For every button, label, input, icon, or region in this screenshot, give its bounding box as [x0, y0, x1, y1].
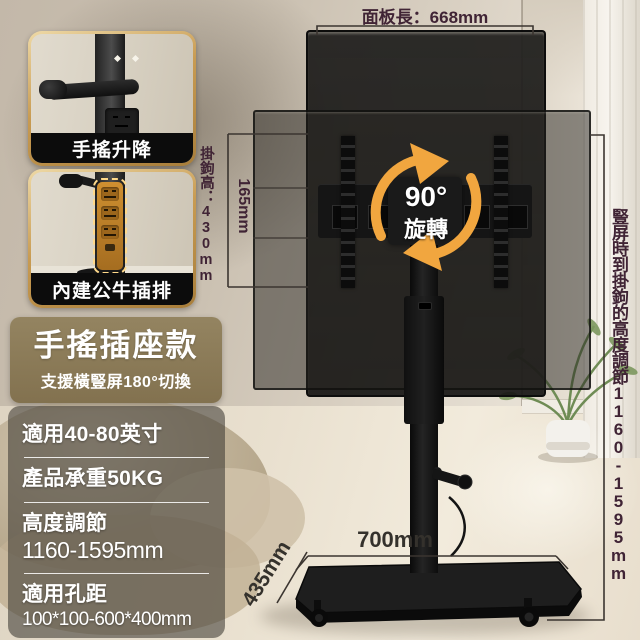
- socket-outlet: [101, 225, 119, 239]
- inset-card-crank: 手搖升降: [28, 31, 196, 166]
- rotation-angle-label: 90°: [386, 181, 466, 213]
- inset-caption: 手搖升降: [31, 133, 193, 163]
- inset-powerstrip-photo: 內建公牛插排: [31, 172, 193, 305]
- inset-caption: 內建公牛插排: [31, 273, 193, 305]
- side-height-label: 豎屏時到掛鉤的高度調節1160-1595mm: [605, 208, 631, 598]
- spec-item: 高度調節 1160-1595mm: [22, 503, 211, 574]
- spec-text: 產品承重50KG: [22, 465, 211, 492]
- spec-value: 1160-1595mm: [22, 537, 211, 565]
- inset-card-powerstrip: 內建公牛插排: [28, 169, 196, 308]
- socket-outlet: [101, 187, 119, 201]
- spec-text: 高度調節: [22, 510, 211, 537]
- rotation-text-label: 旋轉: [386, 212, 466, 244]
- panel-length-label: 面板長：668mm: [330, 3, 520, 28]
- inset-crank-knob: [39, 80, 67, 99]
- spec-item: 適用孔距 100*100-600*400mm: [22, 574, 211, 640]
- product-subtitle: 支援橫豎屏180°切換: [41, 368, 192, 392]
- product-title: 手搖插座款: [34, 328, 199, 364]
- product-scene: 面板長：668mm 掛鉤高：430mm 165mm 豎屏時到掛鉤的高度調節116…: [0, 0, 640, 640]
- strip-switch: [105, 244, 115, 251]
- spec-text: 適用40-80英寸: [22, 421, 211, 448]
- base-width-label: 700mm: [330, 527, 460, 553]
- spec-text: 適用孔距: [22, 581, 211, 608]
- socket-outlet: [101, 206, 119, 220]
- inset-crank-photo: 手搖升降: [31, 34, 193, 163]
- sparkle-icon: [132, 55, 139, 62]
- inset-crank-knob: [59, 174, 83, 188]
- hook-offset-label: 165mm: [234, 177, 252, 235]
- spec-item: 產品承重50KG: [22, 458, 211, 501]
- base-width-line: [296, 556, 568, 570]
- spec-item: 適用40-80英寸: [22, 414, 211, 457]
- hook-height-label: 掛鉤高：430mm: [196, 146, 216, 311]
- height-bracket-right: [547, 135, 604, 620]
- power-strip: [97, 182, 123, 270]
- spec-panel: 適用40-80英寸 產品承重50KG 高度調節 1160-1595mm 適用孔距…: [8, 406, 225, 638]
- spec-value: 100*100-600*400mm: [22, 609, 211, 632]
- title-card: 手搖插座款 支援橫豎屏180°切換: [10, 317, 222, 403]
